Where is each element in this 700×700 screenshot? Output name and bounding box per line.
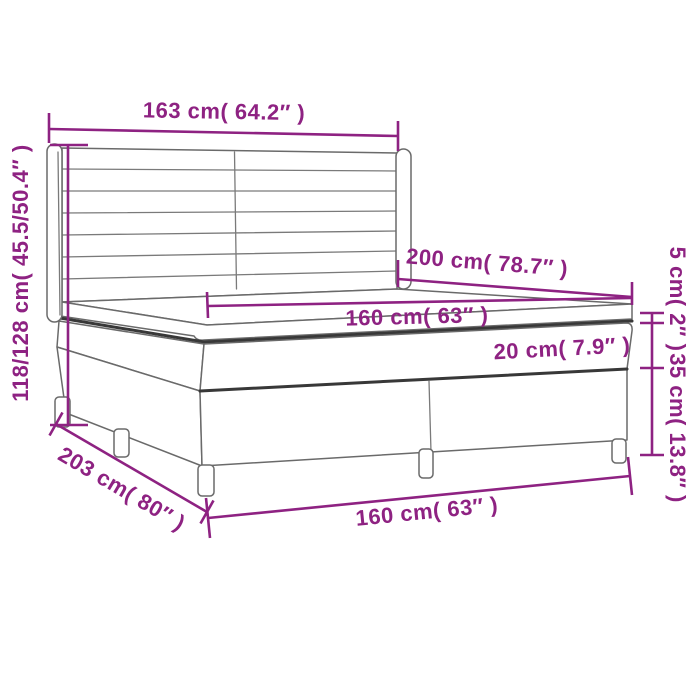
diagram-svg: 163 cm( 64.2″ ) 118/128 cm( 45.5/50.4″ )… — [0, 0, 700, 700]
bed-dimension-diagram: 163 cm( 64.2″ ) 118/128 cm( 45.5/50.4″ )… — [0, 0, 700, 700]
bed-length-label: 200 cm( 78.7″ ) — [405, 243, 569, 281]
box-height-label: 35 cm( 13.8″ ) — [665, 353, 690, 503]
base-width-label: 160 cm( 63″ ) — [354, 492, 499, 531]
leg-front-right — [612, 439, 626, 463]
leg-front-left — [198, 465, 214, 496]
topper-height-label: 5 cm( 2″ ) — [665, 247, 690, 352]
bed-drawing — [47, 144, 632, 496]
leg-front-middle — [419, 449, 433, 478]
dimension-headboard-width: 163 cm( 64.2″ ) — [49, 97, 398, 151]
dimension-right-heights: 5 cm( 2″ ) 35 cm( 13.8″ ) — [640, 247, 690, 503]
total-height-label: 118/128 cm( 45.5/50.4″ ) — [8, 144, 33, 401]
mattress-width-label: 160 cm( 63″ ) — [345, 302, 489, 331]
headboard-width-label: 163 cm( 64.2″ ) — [143, 97, 306, 125]
leg-mid-left — [114, 429, 129, 457]
